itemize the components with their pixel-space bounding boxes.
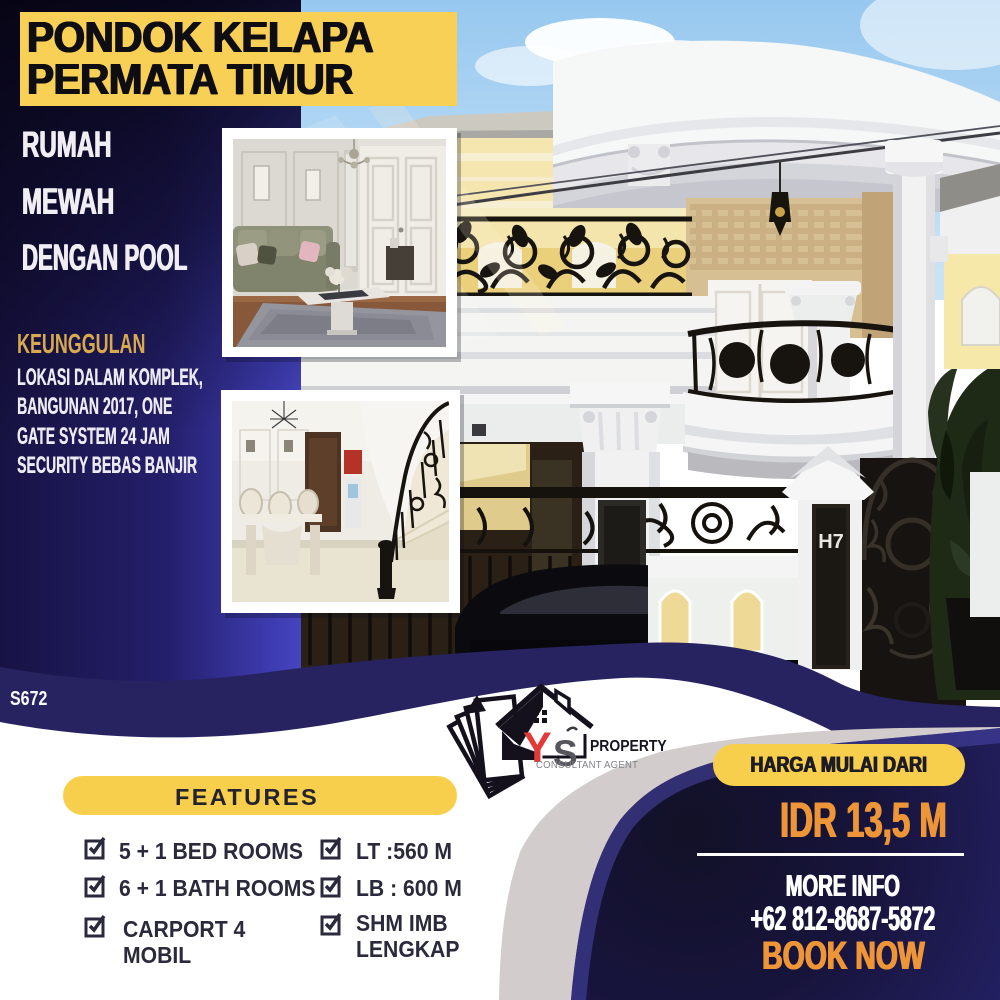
svg-text:H7: H7 [818, 531, 844, 553]
